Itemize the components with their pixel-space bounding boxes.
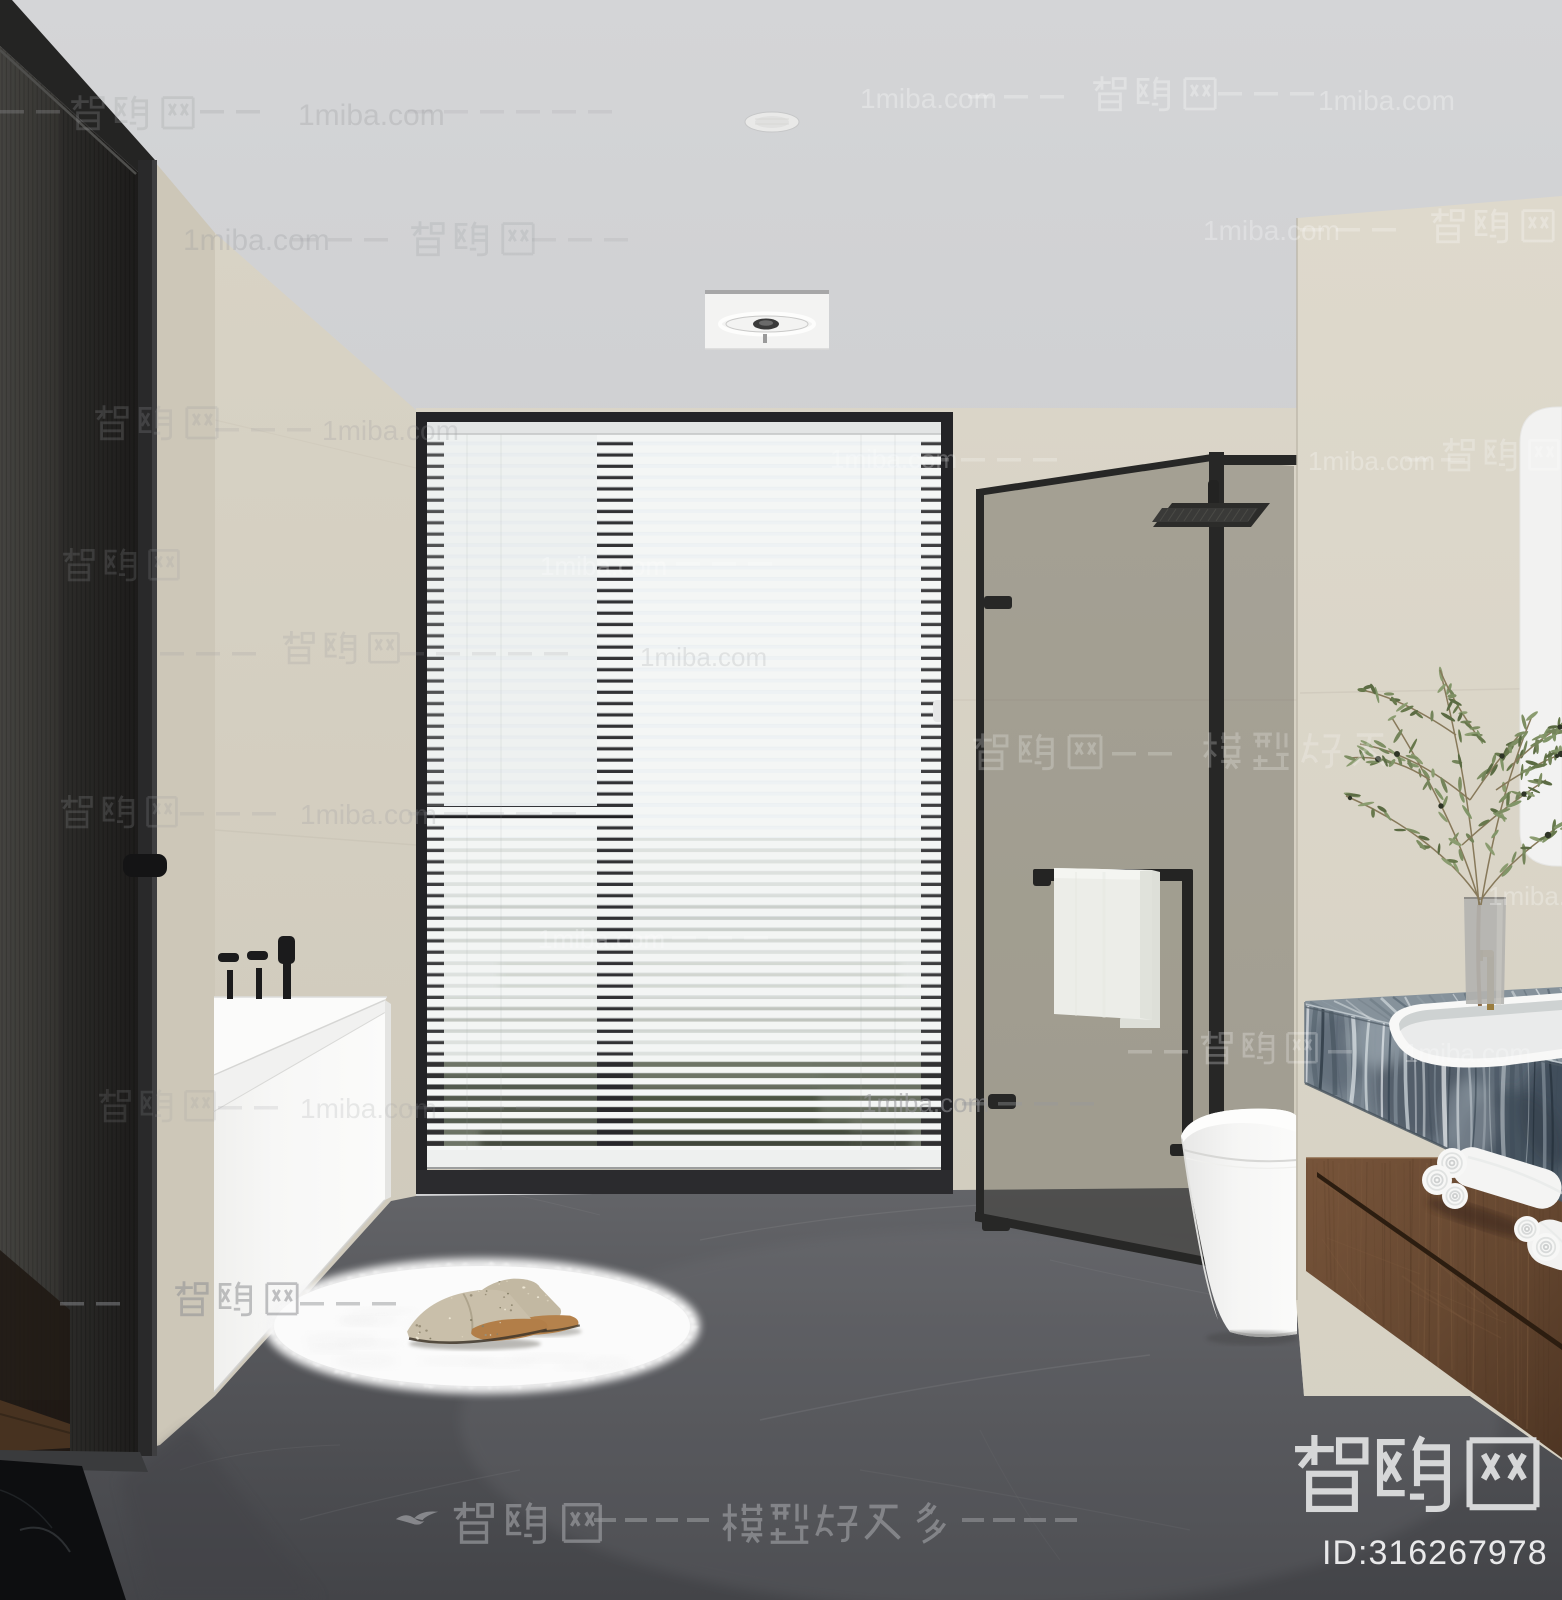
svg-text:1miba.com: 1miba.com bbox=[1318, 85, 1455, 116]
svg-text:1miba.com: 1miba.com bbox=[1404, 1038, 1531, 1068]
svg-text:1miba.com: 1miba.com bbox=[640, 642, 767, 672]
svg-text:1miba.com: 1miba.com bbox=[322, 415, 459, 446]
svg-text:1miba.com: 1miba.com bbox=[1488, 881, 1562, 911]
svg-text:1miba.com: 1miba.com bbox=[540, 551, 667, 581]
svg-text:ID:316267978: ID:316267978 bbox=[1322, 1534, 1548, 1572]
svg-text:1miba.com: 1miba.com bbox=[298, 99, 445, 132]
